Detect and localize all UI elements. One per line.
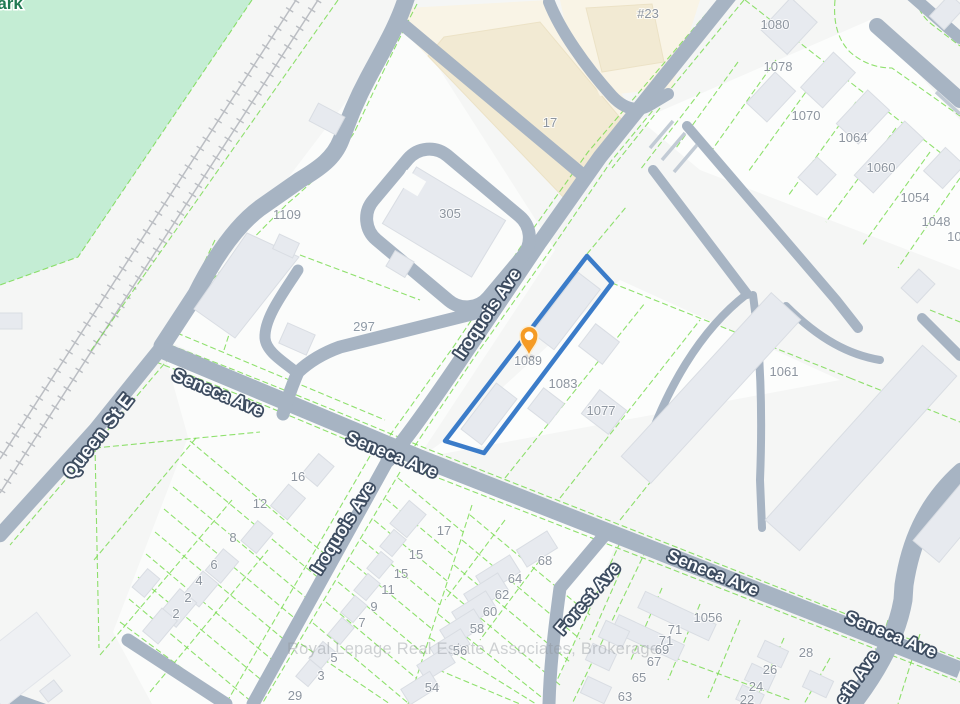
svg-text:9: 9 [370, 599, 377, 614]
svg-text:104: 104 [947, 229, 960, 244]
svg-text:1078: 1078 [764, 59, 793, 74]
svg-text:7: 7 [358, 615, 365, 630]
svg-text:63: 63 [618, 689, 632, 704]
svg-text:56: 56 [453, 643, 467, 658]
svg-text:297: 297 [353, 319, 375, 334]
svg-text:3: 3 [317, 668, 324, 683]
svg-text:58: 58 [470, 621, 484, 636]
svg-text:64: 64 [508, 571, 522, 586]
svg-text:#23: #23 [637, 6, 659, 21]
svg-text:2: 2 [172, 606, 179, 621]
svg-text:16: 16 [291, 469, 305, 484]
svg-text:17: 17 [543, 115, 557, 130]
svg-text:1056: 1056 [694, 610, 723, 625]
svg-text:1064: 1064 [839, 130, 868, 145]
svg-text:15: 15 [409, 547, 423, 562]
svg-text:29: 29 [288, 688, 302, 703]
svg-text:1070: 1070 [792, 108, 821, 123]
svg-text:60: 60 [483, 604, 497, 619]
svg-text:1060: 1060 [867, 160, 896, 175]
svg-text:1054: 1054 [901, 190, 930, 205]
svg-text:17: 17 [437, 523, 451, 538]
svg-text:6: 6 [210, 557, 217, 572]
svg-text:15: 15 [394, 566, 408, 581]
svg-text:5: 5 [330, 650, 337, 665]
svg-text:1061: 1061 [770, 364, 799, 379]
svg-text:1083: 1083 [549, 376, 578, 391]
svg-text:54: 54 [425, 680, 439, 695]
svg-text:4: 4 [195, 573, 202, 588]
svg-text:1080: 1080 [761, 17, 790, 32]
svg-text:68: 68 [538, 553, 552, 568]
svg-text:Royal Lepage Real Estate Assoc: Royal Lepage Real Estate Associates, Bro… [287, 640, 659, 658]
svg-text:28: 28 [799, 645, 813, 660]
svg-text:67: 67 [647, 654, 661, 669]
svg-text:8: 8 [229, 530, 236, 545]
svg-text:1077: 1077 [587, 403, 616, 418]
svg-text:305: 305 [439, 206, 461, 221]
svg-text:65: 65 [632, 670, 646, 685]
svg-text:62: 62 [495, 587, 509, 602]
svg-text:2: 2 [184, 590, 191, 605]
svg-text:11: 11 [381, 582, 395, 597]
svg-text:Park: Park [0, 0, 23, 13]
svg-text:26: 26 [763, 662, 777, 677]
svg-text:1048: 1048 [922, 214, 951, 229]
svg-text:22: 22 [740, 692, 754, 704]
svg-text:1109: 1109 [273, 207, 301, 222]
svg-text:12: 12 [253, 496, 267, 511]
